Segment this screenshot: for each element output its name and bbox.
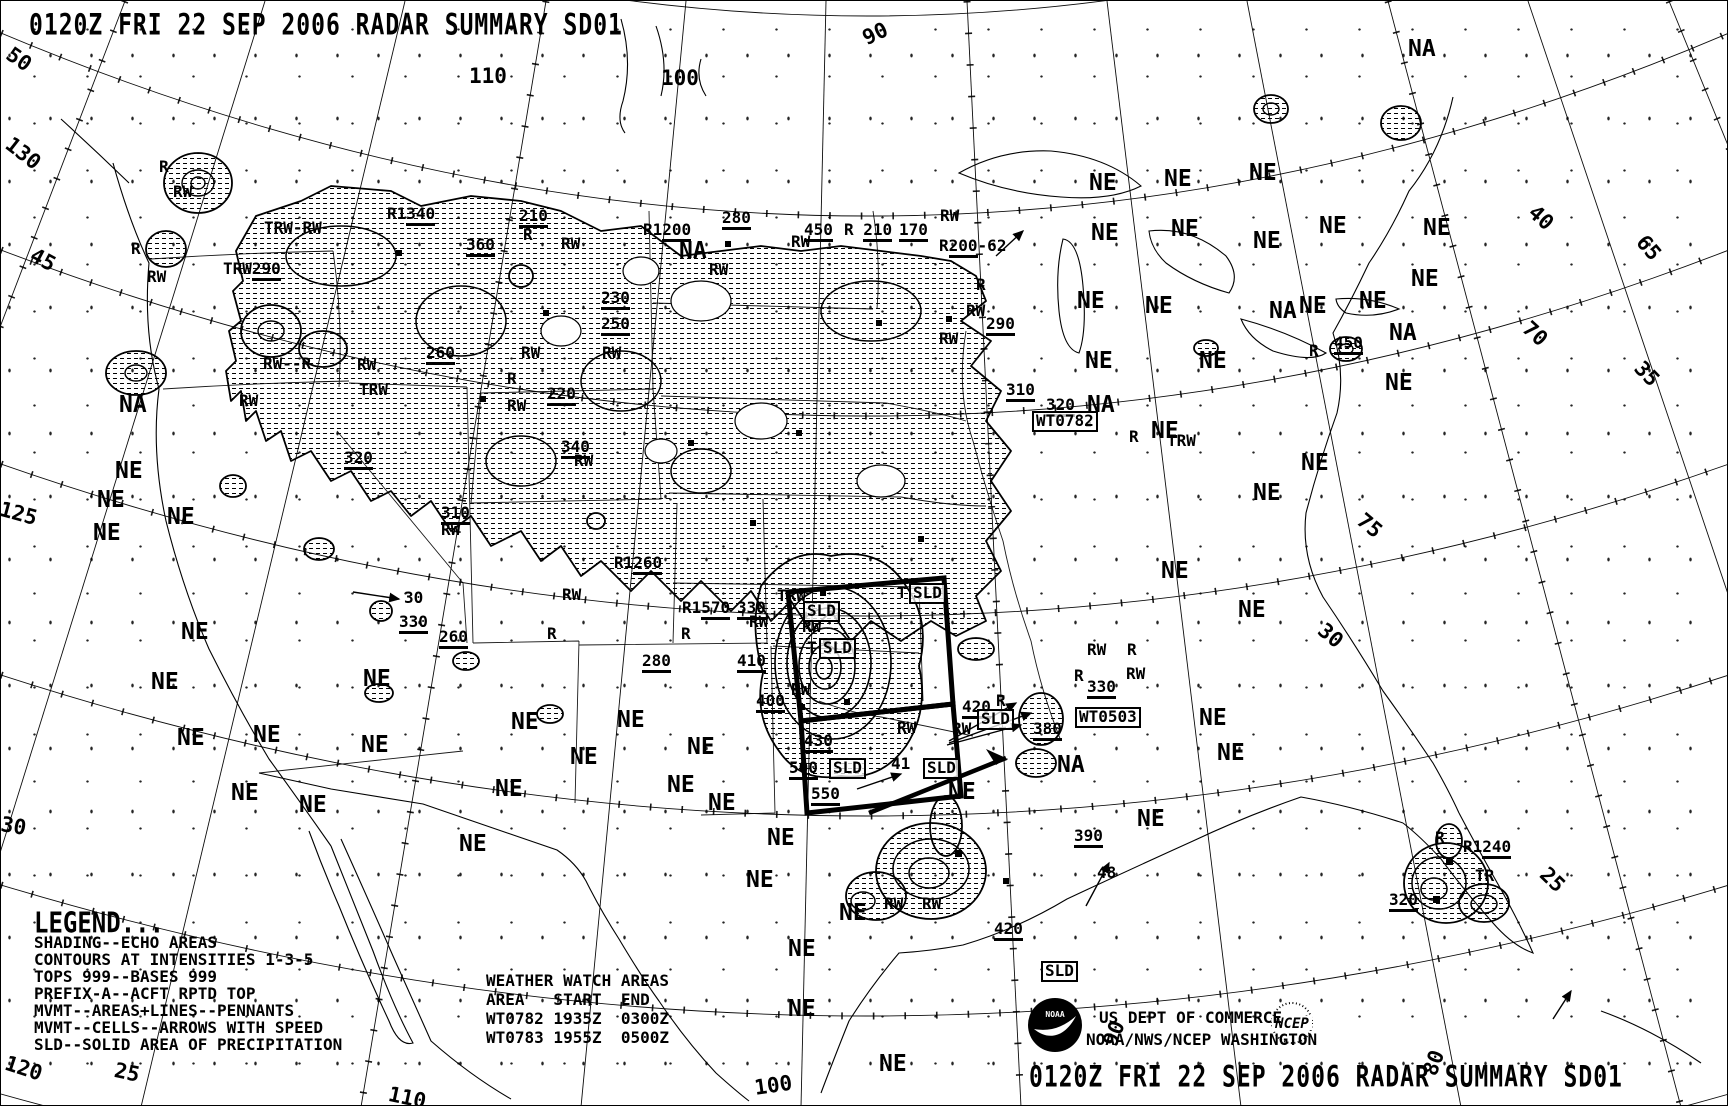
map-label: NE <box>570 745 598 769</box>
legend-line: MVMT--CELLS--ARROWS WITH SPEED <box>34 1019 342 1036</box>
map-label: 41 <box>891 756 910 773</box>
legend-lines: SHADING--ECHO AREASCONTOURS AT INTENSITI… <box>34 934 342 1053</box>
legend: LEGEND... SHADING--ECHO AREASCONTOURS AT… <box>34 906 342 1053</box>
map-label: NE <box>459 832 487 856</box>
map-label: TRW <box>359 382 388 399</box>
map-label: NE <box>361 733 389 757</box>
map-label: NE <box>1171 217 1199 241</box>
map-label: R <box>1127 642 1137 659</box>
map-label: NE <box>177 726 205 750</box>
map-label: T <box>807 640 817 657</box>
map-label: RW <box>791 682 810 699</box>
map-label: RW <box>173 184 192 201</box>
map-label: R <box>523 227 533 244</box>
map-label: NE <box>231 781 259 805</box>
map-label: NE <box>746 868 774 892</box>
map-label: SLD <box>1041 961 1078 982</box>
latitude-label: 40 <box>1524 201 1558 234</box>
latitude-label: 45 <box>27 244 60 275</box>
map-label: NE <box>788 997 816 1021</box>
map-label: RW <box>1126 666 1145 683</box>
map-label: RW <box>709 262 728 279</box>
map-label: RW <box>147 269 166 286</box>
legend-line: SLD--SOLID AREA OF PRECIPITATION <box>34 1036 342 1053</box>
map-label: NE <box>948 780 976 804</box>
map-label: R200-62 <box>939 238 1006 255</box>
map-label: R1260 <box>614 555 662 572</box>
longitude-label: 70 <box>1518 317 1552 350</box>
longitude-label: 100 <box>661 67 699 89</box>
map-label: RW <box>749 614 768 631</box>
map-label: RW <box>562 587 581 604</box>
map-label: 330 <box>1087 679 1116 696</box>
map-label: NA <box>1057 753 1085 777</box>
map-label: NE <box>363 667 391 691</box>
map-label: SLD <box>829 758 866 779</box>
watch-table-row: WT0783 1955Z 0500Z <box>486 1028 669 1047</box>
watch-table-title: WEATHER WATCH AREAS <box>486 971 669 990</box>
map-label: NA <box>1269 299 1297 323</box>
map-label: NE <box>511 710 539 734</box>
map-label: NE <box>97 488 125 512</box>
map-label: NE <box>167 505 195 529</box>
map-label: NE <box>181 620 209 644</box>
map-label: NE <box>1249 161 1277 185</box>
map-label: NE <box>1217 741 1245 765</box>
map-label: RW <box>940 208 959 225</box>
map-label: NA <box>1389 321 1417 345</box>
map-label: RW <box>574 453 593 470</box>
map-label: 260 <box>439 629 468 646</box>
map-label: R <box>1074 668 1084 685</box>
map-label: NE <box>1253 229 1281 253</box>
agency-line1: US DEPT OF COMMERCE <box>1099 1008 1282 1027</box>
map-label: NE <box>1091 221 1119 245</box>
legend-line: TOPS 999--BASES 999 <box>34 968 342 985</box>
map-label: 210 <box>519 208 548 225</box>
longitude-label: 120 <box>2 1052 45 1085</box>
legend-heading: LEGEND... <box>34 906 342 940</box>
map-label: NE <box>1199 706 1227 730</box>
longitude-label: 125 <box>0 498 40 529</box>
map-label: R <box>1129 429 1139 446</box>
map-label: NE <box>1164 167 1192 191</box>
radar-summary-chart: NOAA NCEP 501304512530120251101101009010… <box>0 0 1728 1106</box>
map-label: SLD <box>909 583 946 604</box>
map-label: RW <box>507 398 526 415</box>
map-label: R <box>681 626 691 643</box>
map-label: SLD <box>977 709 1014 730</box>
map-label: 290 <box>986 316 1015 333</box>
map-label: RW <box>922 896 941 913</box>
map-label: RW--R <box>263 356 311 373</box>
map-label: RW <box>1087 642 1106 659</box>
map-label: R <box>1435 830 1445 847</box>
watch-table-row: WT0782 1935Z 0300Z <box>486 1009 669 1028</box>
map-label: NE <box>667 773 695 797</box>
map-label: R <box>131 241 141 258</box>
longitude-label: 65 <box>1632 231 1665 265</box>
map-label: 280 <box>722 210 751 227</box>
map-label: R1240 <box>1463 839 1511 856</box>
map-label: R <box>547 626 557 643</box>
map-label: NE <box>1411 267 1439 291</box>
map-label: R <box>159 159 169 176</box>
longitude-label: 100 <box>753 1072 794 1099</box>
map-label: 400 <box>756 693 785 710</box>
map-label: TRW-RW <box>264 220 322 237</box>
map-label: NE <box>1359 289 1387 313</box>
map-label: 330 <box>399 614 428 631</box>
map-label: 30 <box>404 590 423 607</box>
map-label: R 210 <box>844 222 892 239</box>
latitude-label: 30 <box>1314 619 1348 652</box>
map-label: RW <box>802 619 821 636</box>
map-label: RW <box>561 236 580 253</box>
watch-table: WEATHER WATCH AREAS AREA START END WT078… <box>486 971 669 1047</box>
map-label: 320 <box>1389 892 1418 909</box>
map-label: 170 <box>899 222 928 239</box>
map-label: RW <box>884 896 903 913</box>
map-label: RW <box>441 522 460 539</box>
map-label: SLD <box>819 638 856 659</box>
map-label: 230 <box>601 290 630 307</box>
map-label: TRW290 <box>223 261 281 278</box>
map-label: 310 <box>1006 382 1035 399</box>
map-label: SLD <box>923 758 960 779</box>
latitude-label: 25 <box>112 1059 141 1086</box>
map-label: NE <box>151 670 179 694</box>
map-label: NE <box>1161 559 1189 583</box>
map-label: NE <box>1299 294 1327 318</box>
map-label: 430 <box>804 733 833 750</box>
legend-line: PREFIX-A--ACFT RPTD TOP <box>34 985 342 1002</box>
longitude-label: 130 <box>1 133 44 174</box>
map-label: NE <box>299 793 327 817</box>
map-label: NE <box>879 1052 907 1076</box>
latitude-label: 30 <box>0 813 28 839</box>
latitude-label: 25 <box>1536 863 1570 896</box>
map-label: 360 <box>466 237 495 254</box>
watch-table-header: AREA START END <box>486 990 669 1009</box>
map-label: NE <box>839 901 867 925</box>
longitude-label: 75 <box>1353 509 1387 542</box>
map-label: 280 <box>642 653 671 670</box>
map-label: 420 <box>994 921 1023 938</box>
latitude-label: 35 <box>1630 357 1663 391</box>
map-label: NE <box>708 791 736 815</box>
map-label: 500 <box>789 760 818 777</box>
map-label: WT0503 <box>1075 707 1141 728</box>
map-label: NA <box>1408 37 1436 61</box>
map-label: NE <box>1423 216 1451 240</box>
map-label: NE <box>1137 807 1165 831</box>
map-label: T <box>897 585 907 602</box>
map-label: NE <box>1238 598 1266 622</box>
map-label: NE <box>788 937 816 961</box>
map-label: WT0782 <box>1032 411 1098 432</box>
map-label: NE <box>767 826 795 850</box>
longitude-label: 90 <box>859 18 891 49</box>
chart-title-bottom: 0120Z FRI 22 SEP 2006 RADAR SUMMARY SD01 <box>1029 1061 1623 1094</box>
longitude-label: 110 <box>469 65 507 87</box>
map-label: 410 <box>737 653 766 670</box>
chart-title-top: 0120Z FRI 22 SEP 2006 RADAR SUMMARY SD01 <box>29 9 623 42</box>
map-label: NE <box>115 459 143 483</box>
map-label: 320 <box>344 450 373 467</box>
map-label: RW <box>897 720 916 737</box>
map-label: NE <box>617 708 645 732</box>
map-label: 48 <box>1097 865 1116 882</box>
latitude-label: 50 <box>2 43 35 76</box>
map-label: TRW <box>777 588 806 605</box>
map-label: NE <box>1253 481 1281 505</box>
legend-line: CONTOURS AT INTENSITIES 1-3-5 <box>34 951 342 968</box>
map-label: RW <box>966 303 985 320</box>
map-label: 250 <box>601 316 630 333</box>
map-label: 450 <box>804 222 833 239</box>
map-label: 260 <box>426 345 455 362</box>
map-label: NE <box>93 521 121 545</box>
map-label: R <box>976 277 986 294</box>
map-label: 380 <box>1033 721 1062 738</box>
map-label: 550 <box>811 786 840 803</box>
map-label: 220 <box>547 386 576 403</box>
map-label: NE <box>687 735 715 759</box>
map-label: NE <box>1077 289 1105 313</box>
map-label: NE <box>1145 294 1173 318</box>
map-label: NE <box>495 777 523 801</box>
map-label: R <box>1309 343 1319 360</box>
map-label: NA <box>119 393 147 417</box>
map-label: R1340 <box>387 206 435 223</box>
map-label: NA <box>679 239 707 263</box>
map-label: 450 <box>1334 335 1363 352</box>
map-label: R <box>507 371 517 388</box>
map-label: RW <box>939 331 958 348</box>
map-label: NE <box>253 723 281 747</box>
map-label: NE <box>1385 371 1413 395</box>
agency-line2: NOAA/NWS/NCEP WASHINGTON <box>1086 1030 1317 1049</box>
map-label: R <box>996 693 1006 710</box>
map-label: RW <box>357 357 376 374</box>
map-label: RW <box>952 721 971 738</box>
map-label: NE <box>1089 171 1117 195</box>
map-label: RW <box>239 393 258 410</box>
map-label: RW <box>602 345 621 362</box>
legend-line: MVMT--AREAS+LINES--PENNANTS <box>34 1002 342 1019</box>
map-label: TR <box>1475 868 1494 885</box>
map-label: NE <box>1151 419 1179 443</box>
map-label: R1570 <box>682 600 730 617</box>
map-label: NE <box>1319 214 1347 238</box>
map-label: 390 <box>1074 828 1103 845</box>
map-label: R1200 <box>643 222 691 239</box>
map-label: RW <box>521 345 540 362</box>
map-label: NE <box>1085 349 1113 373</box>
map-label: NE <box>1301 451 1329 475</box>
longitude-label: 110 <box>386 1083 428 1106</box>
watch-table-rows: WT0782 1935Z 0300ZWT0783 1955Z 0500Z <box>486 1009 669 1047</box>
map-label: NE <box>1199 349 1227 373</box>
